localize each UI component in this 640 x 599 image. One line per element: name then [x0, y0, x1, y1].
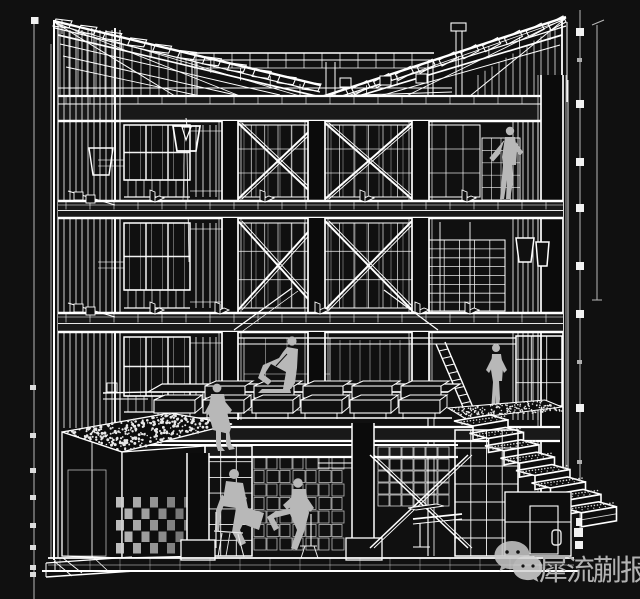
svg-text:犀流蒯报: 犀流蒯报 [539, 554, 640, 587]
